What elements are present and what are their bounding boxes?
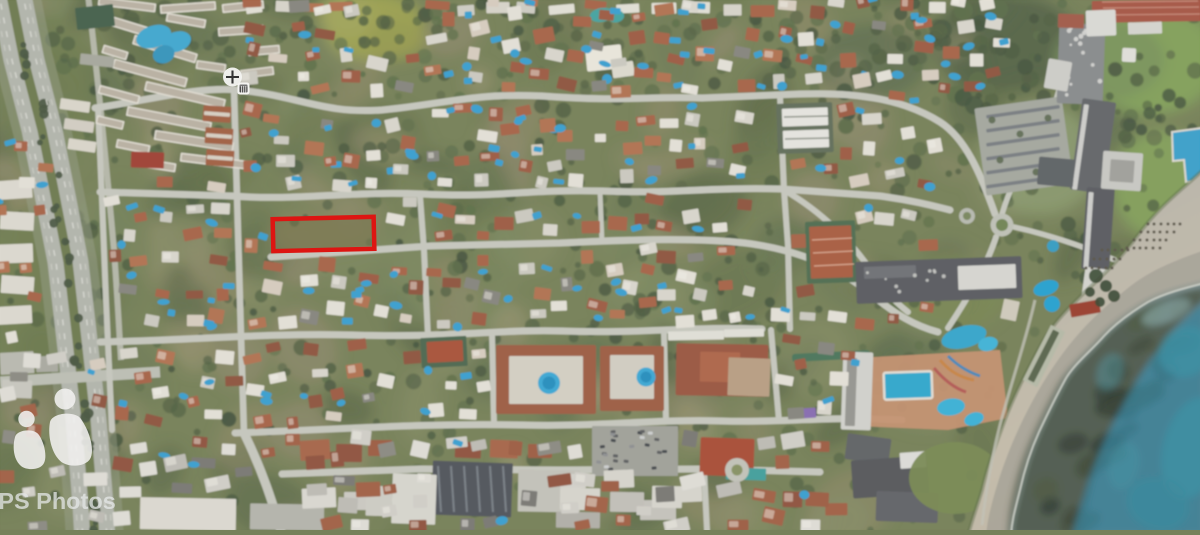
svg-text:GPS Photos: GPS Photos (0, 488, 116, 514)
